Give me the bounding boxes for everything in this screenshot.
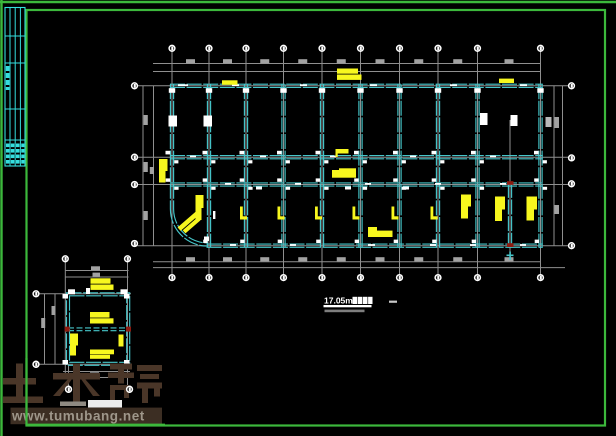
svg-text:17.05m: 17.05m [324,296,353,306]
svg-text:www.tumubang.net: www.tumubang.net [11,409,145,424]
